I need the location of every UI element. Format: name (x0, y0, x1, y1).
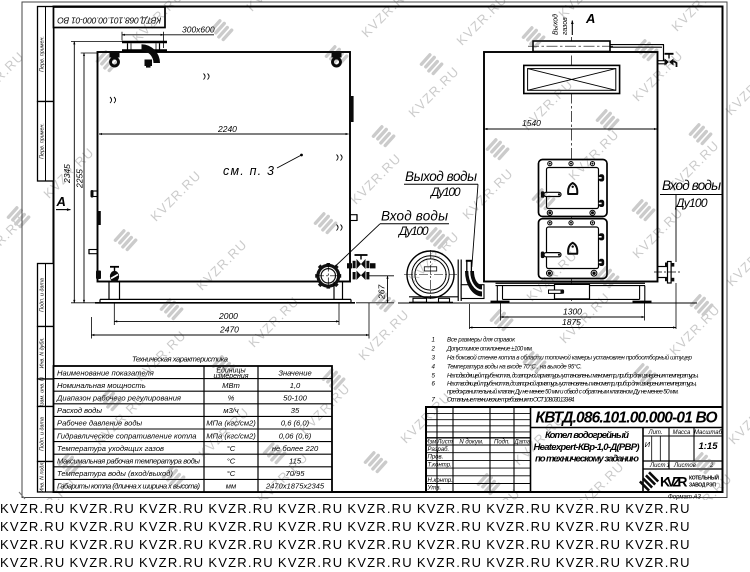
svg-text:5: 5 (432, 373, 436, 380)
svg-text:2000: 2000 (218, 311, 238, 321)
svg-text:KVZR.RU: KVZR.RU (666, 301, 723, 358)
svg-text:35: 35 (291, 406, 300, 415)
svg-text:Инв. N подл.: Инв. N подл. (40, 461, 46, 493)
svg-text:Подп. и дата: Подп. и дата (40, 278, 46, 312)
svg-text:KVZR.RU: KVZR.RU (555, 0, 612, 21)
svg-text:50-100: 50-100 (283, 394, 307, 403)
svg-text:Ду100: Ду100 (397, 224, 429, 238)
svg-text:Расход воды: Расход воды (57, 406, 102, 415)
svg-text:Все размеры для справок: Все размеры для справок (447, 337, 516, 344)
svg-text:На боковой стенке котла в обла: На боковой стенке котла в области топочн… (447, 355, 693, 362)
svg-text:KVZR: KVZR (660, 474, 687, 490)
svg-text:Т.контр.: Т.контр. (428, 462, 452, 468)
svg-text:Котел водогрейный: Котел водогрейный (545, 430, 629, 441)
svg-text:KVZR.RU: KVZR.RU (0, 212, 28, 269)
svg-text:1: 1 (432, 337, 435, 344)
svg-text:измерения: измерения (213, 373, 248, 380)
svg-text:2: 2 (431, 346, 436, 353)
svg-text:Ду100: Ду100 (429, 185, 461, 199)
svg-text:Лист: Лист (436, 440, 452, 446)
svg-text:мм: мм (226, 482, 237, 491)
svg-text:Температура воды на входе 70°: Температура воды на входе 70°С., на выхо… (447, 364, 582, 371)
svg-text:Выход: Выход (552, 14, 560, 35)
svg-text:И: И (645, 440, 651, 449)
svg-text:Heatexpert-КВр-1,0-Д(РВР): Heatexpert-КВр-1,0-Д(РВР) (534, 442, 640, 453)
svg-text:Выход воды: Выход воды (405, 169, 478, 184)
svg-text:KVZR.RU: KVZR.RU (668, 0, 725, 34)
svg-text:На подводящей трубе котла ,: На подводящей трубе котла , до запорной … (447, 373, 699, 380)
svg-text:Инв. N дубл.: Инв. N дубл. (40, 337, 46, 368)
svg-text:Масса: Масса (673, 430, 691, 436)
svg-text:Подп. и дата: Подп. и дата (40, 417, 46, 451)
svg-text:1:15: 1:15 (698, 441, 718, 452)
svg-text:Значение: Значение (278, 368, 311, 377)
svg-text:N докум.: N докум. (459, 440, 483, 446)
svg-text:1: 1 (667, 463, 670, 469)
svg-text:Взам. инв. N: Взам. инв. N (40, 377, 46, 409)
svg-text:4: 4 (432, 364, 436, 371)
svg-text:°С: °С (227, 469, 236, 478)
svg-text:KVZR.RU: KVZR.RU (725, 390, 750, 447)
svg-text:Перв. примен.: Перв. примен. (40, 36, 46, 72)
svg-text:Перв. примен.: Перв. примен. (40, 123, 46, 159)
svg-text:Температура уходящих газов: Температура уходящих газов (57, 444, 164, 453)
svg-text:Допустимое отклонение ±100 мм: Допустимое отклонение ±100 мм. (446, 346, 533, 353)
svg-text:Пров.: Пров. (428, 455, 444, 461)
svg-text:Номинальная мощность: Номинальная мощность (57, 381, 146, 390)
svg-text:KVZR.RU: KVZR.RU (347, 150, 404, 207)
svg-text:KVZR.RU: KVZR.RU (0, 48, 27, 105)
svg-text:Разраб.: Разраб. (428, 447, 450, 453)
svg-text:Гидравлическое сопративление к: Гидравлическое сопративление котла (57, 431, 197, 440)
svg-text:Изм.: Изм. (425, 440, 438, 446)
svg-text:°С: °С (227, 444, 236, 453)
svg-text:Подп.: Подп. (494, 440, 510, 446)
svg-text:%: % (228, 394, 235, 403)
svg-text:Масштаб: Масштаб (694, 430, 723, 436)
svg-text:1,0: 1,0 (290, 381, 301, 390)
svg-text:Утв.: Утв. (427, 486, 442, 492)
svg-text:Лист: Лист (649, 463, 665, 469)
svg-text:6: 6 (432, 381, 436, 388)
svg-text:Вход воды: Вход воды (381, 209, 449, 224)
svg-text:по техническому заданию: по техническому заданию (535, 454, 639, 465)
svg-text:Н.контр.: Н.контр. (428, 478, 453, 484)
svg-text:см. п. 3: см. п. 3 (223, 164, 275, 178)
svg-text:предохранительный клапан Ду н: предохранительный клапан Ду не менее 50 … (447, 389, 679, 396)
svg-text:На отводящей трубе котла ,до з: На отводящей трубе котла ,до запорной ар… (447, 381, 697, 388)
svg-text:2240: 2240 (217, 124, 237, 134)
svg-text:МВт: МВт (222, 381, 240, 390)
svg-text:2470: 2470 (219, 325, 239, 335)
svg-text:А: А (585, 11, 595, 26)
svg-text:°С: °С (227, 457, 236, 466)
svg-text:3: 3 (432, 355, 436, 362)
svg-text:Остальные технические требован: Остальные технические требования по ОСТ … (447, 397, 575, 404)
svg-text:Лит.: Лит. (647, 430, 662, 436)
svg-text:А: А (56, 194, 66, 209)
